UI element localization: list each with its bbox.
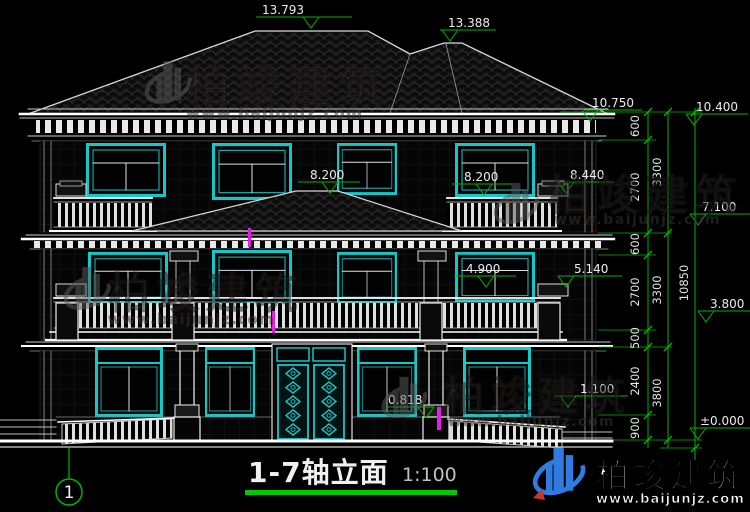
window-3f-2: [214, 145, 291, 199]
window-3f-1: [88, 145, 165, 196]
dim-600-1: 600: [628, 115, 642, 137]
elevation-drawing[interactable]: 600 2700 600 2700 500 2400 900 3300 3300…: [0, 0, 750, 512]
dim-3300-2: 3300: [650, 275, 664, 304]
svg-text:10.750: 10.750: [592, 96, 634, 110]
capital-2f-bay-right: [418, 251, 446, 261]
drawing-title: 1-7轴立面: [248, 456, 389, 489]
dim-10850-total: 10850: [677, 265, 691, 302]
brand-name: 柏竣建筑: [596, 456, 744, 495]
svg-text:13.388: 13.388: [448, 16, 490, 30]
window-2f-4: [457, 253, 534, 300]
dim-900: 900: [628, 417, 642, 439]
title-underline: [245, 490, 457, 495]
svg-text:柏竣建筑: 柏竣建筑: [108, 269, 304, 318]
svg-text:www.baijunjz.com: www.baijunjz.com: [554, 212, 721, 228]
window-2f-3: [338, 253, 396, 302]
drawing-scale: 1:100: [402, 464, 457, 486]
dim-3800: 3800: [650, 378, 664, 407]
svg-text:3.800: 3.800: [710, 297, 744, 311]
window-1f-1: [97, 349, 162, 416]
dim-500: 500: [628, 327, 642, 349]
svg-text:www.baijunjz.com: www.baijunjz.com: [186, 104, 363, 122]
capital-2f-right: [538, 284, 568, 296]
axis-bubble-label: 1: [64, 483, 75, 503]
dim-600-2: 600: [628, 233, 642, 255]
svg-text:10.400: 10.400: [696, 100, 738, 114]
cad-canvas[interactable]: 600 2700 600 2700 500 2400 900 3300 3300…: [0, 0, 750, 512]
svg-text:±0.000: ±0.000: [700, 414, 744, 428]
svg-text:4.900: 4.900: [466, 262, 500, 276]
door-transom-right: [313, 348, 345, 361]
svg-text:8.200: 8.200: [310, 168, 344, 182]
window-3f-3: [338, 144, 396, 193]
svg-text:13.793: 13.793: [262, 3, 304, 17]
window-1f-2: [206, 349, 254, 416]
svg-text:www.baijunjz.com: www.baijunjz.com: [108, 312, 275, 328]
svg-text:5.140: 5.140: [574, 262, 608, 276]
door-transom-left: [277, 348, 309, 361]
capital-2f-bay-left: [170, 251, 198, 261]
brand-url: www.baijunjz.com: [596, 492, 745, 507]
svg-text:www.baijunjz.com: www.baijunjz.com: [448, 414, 615, 430]
dim-2700-2: 2700: [628, 277, 642, 306]
entrance-door: [272, 344, 352, 441]
capital-3f-left: [56, 181, 86, 196]
svg-text:8.200: 8.200: [464, 170, 498, 184]
